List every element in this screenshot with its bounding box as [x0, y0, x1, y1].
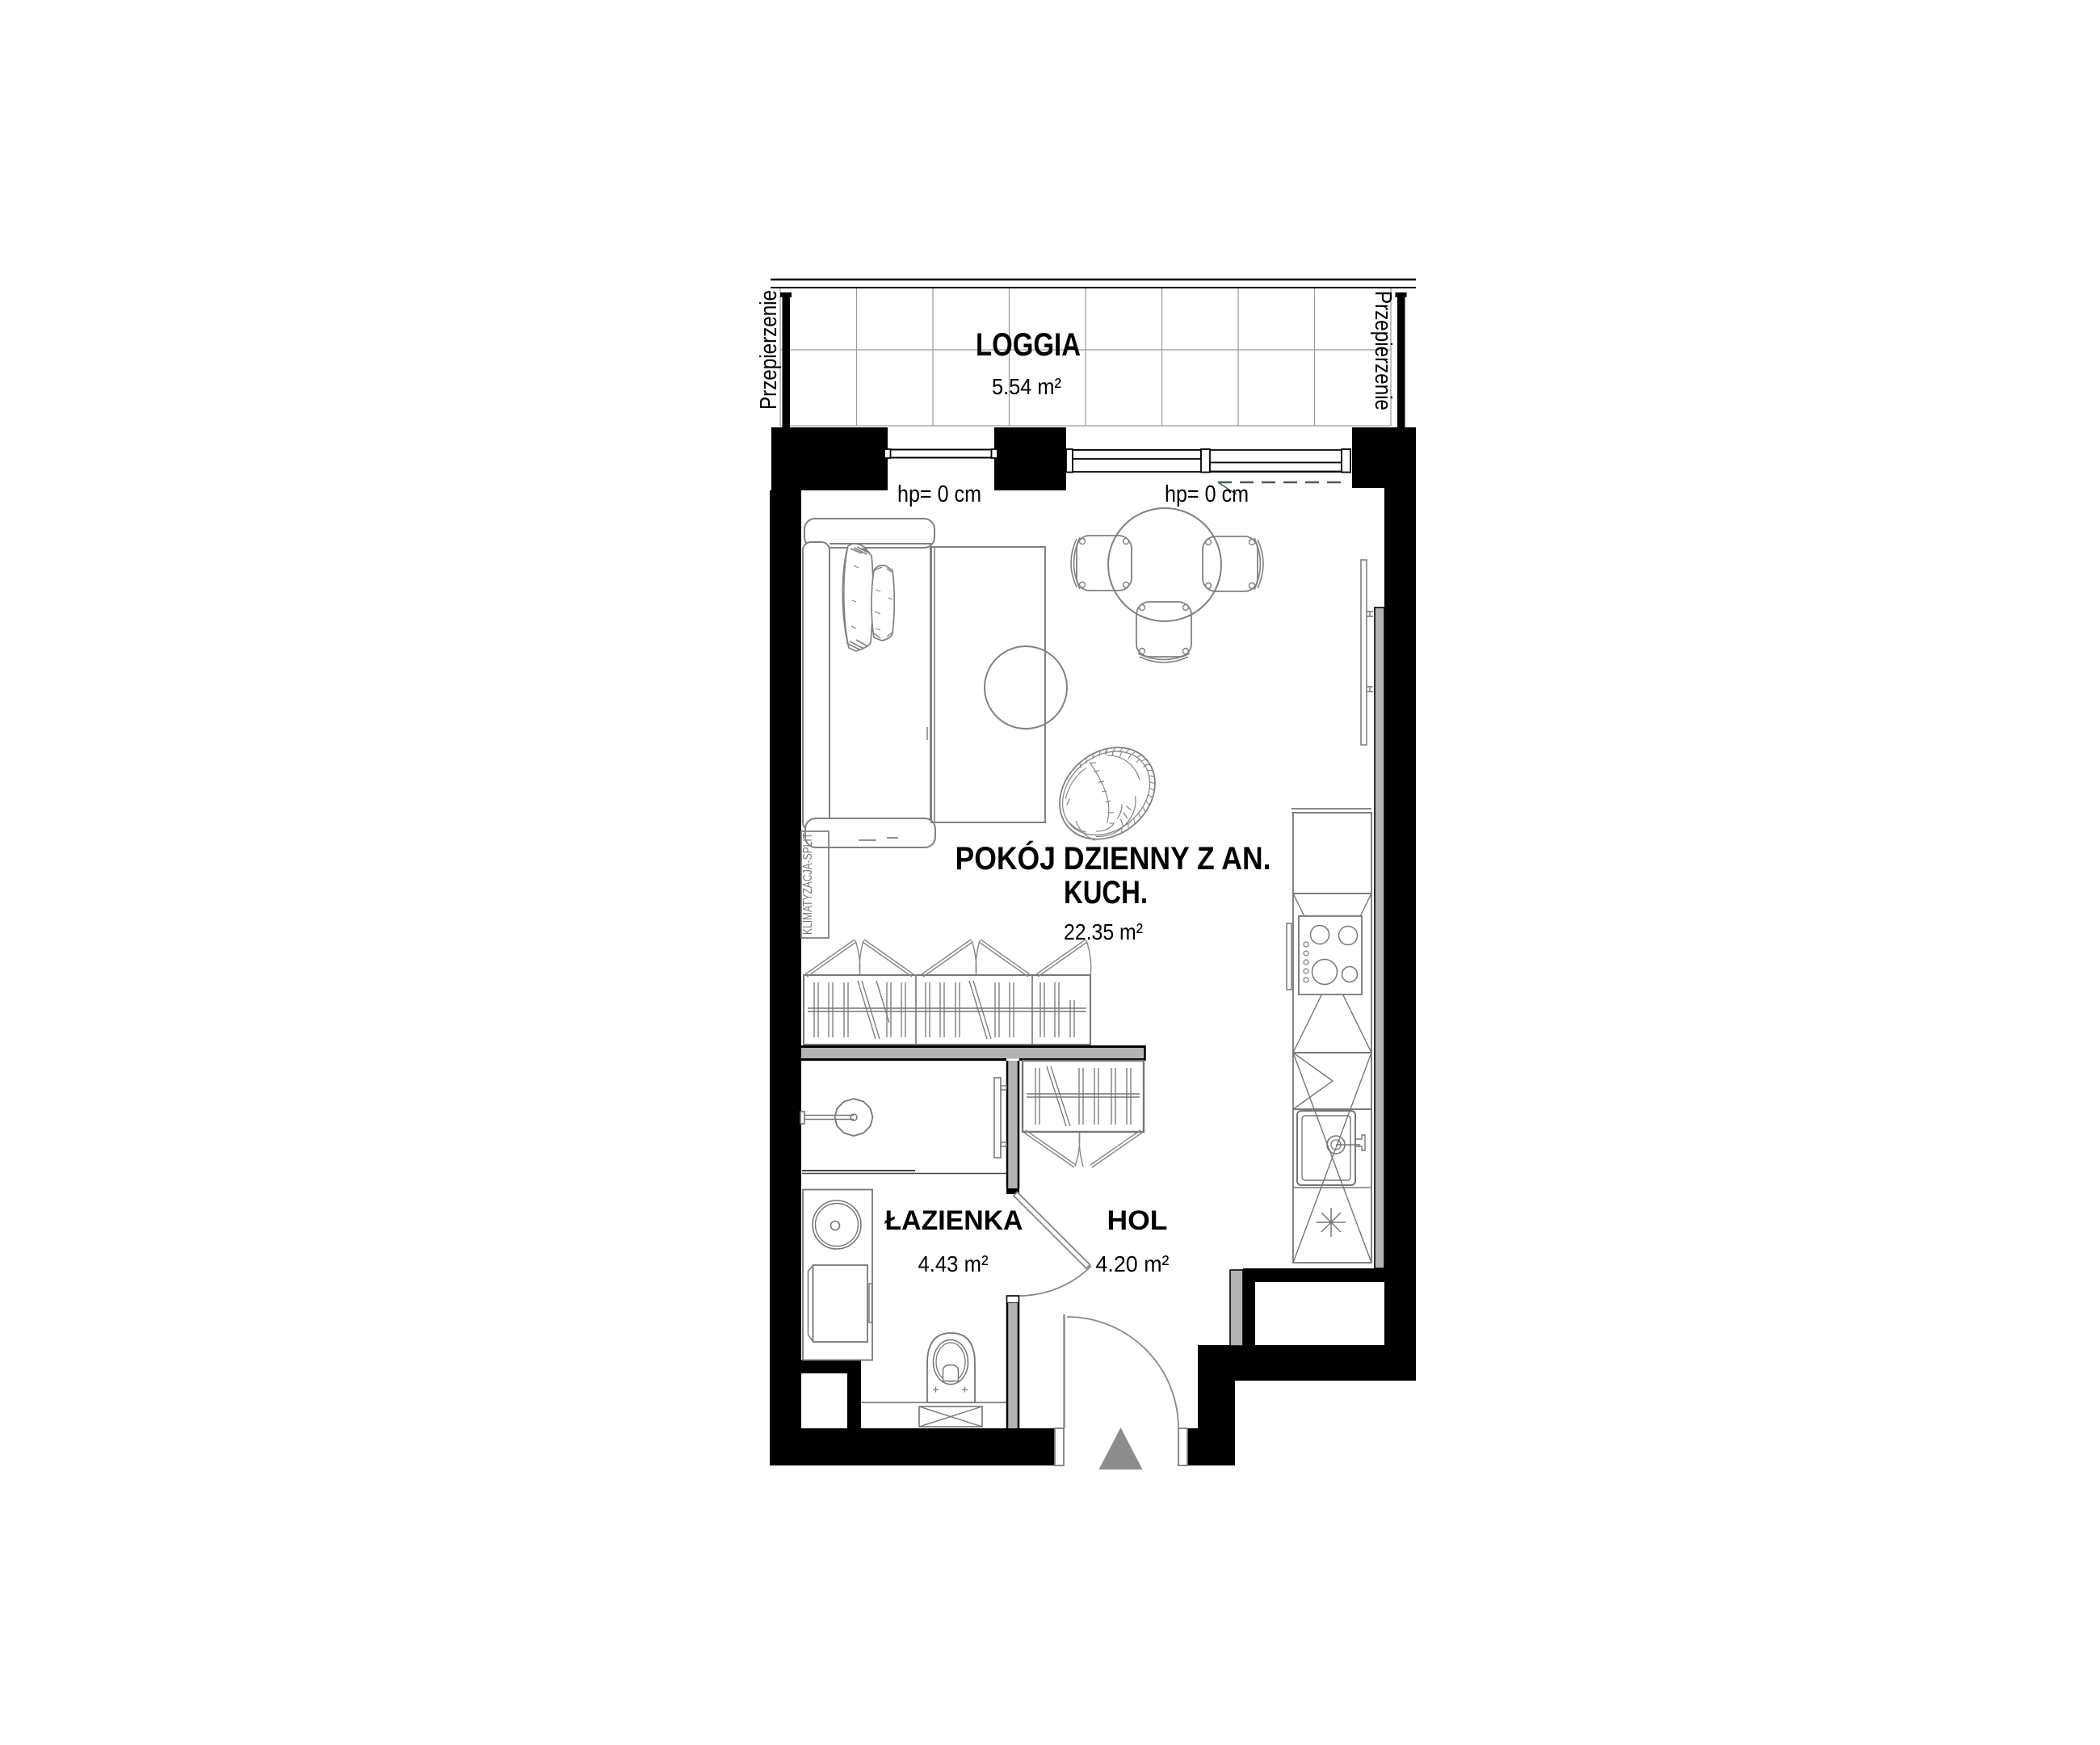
svg-text:5.54 m²: 5.54 m²: [992, 374, 1061, 399]
svg-text:22.35 m²: 22.35 m²: [1064, 919, 1143, 944]
svg-text:Przepierzenie: Przepierzenie: [1370, 291, 1396, 410]
svg-text:4.20 m²: 4.20 m²: [1096, 1251, 1170, 1276]
svg-text:Przepierzenie: Przepierzenie: [756, 290, 782, 410]
svg-text:hp= 0 cm: hp= 0 cm: [1165, 481, 1249, 507]
svg-text:4.43 m²: 4.43 m²: [918, 1251, 989, 1276]
svg-text:HOL: HOL: [1107, 1205, 1168, 1236]
svg-text:KUCH.: KUCH.: [1064, 875, 1148, 910]
svg-text:KLIMATYZACJA-SPLIT: KLIMATYZACJA-SPLIT: [801, 833, 815, 935]
svg-text:ŁAZIENKA: ŁAZIENKA: [885, 1205, 1023, 1236]
svg-text:POKÓJ DZIENNY Z AN.: POKÓJ DZIENNY Z AN.: [955, 839, 1271, 877]
svg-text:LOGGIA: LOGGIA: [976, 327, 1081, 363]
svg-text:hp= 0 cm: hp= 0 cm: [897, 481, 981, 507]
